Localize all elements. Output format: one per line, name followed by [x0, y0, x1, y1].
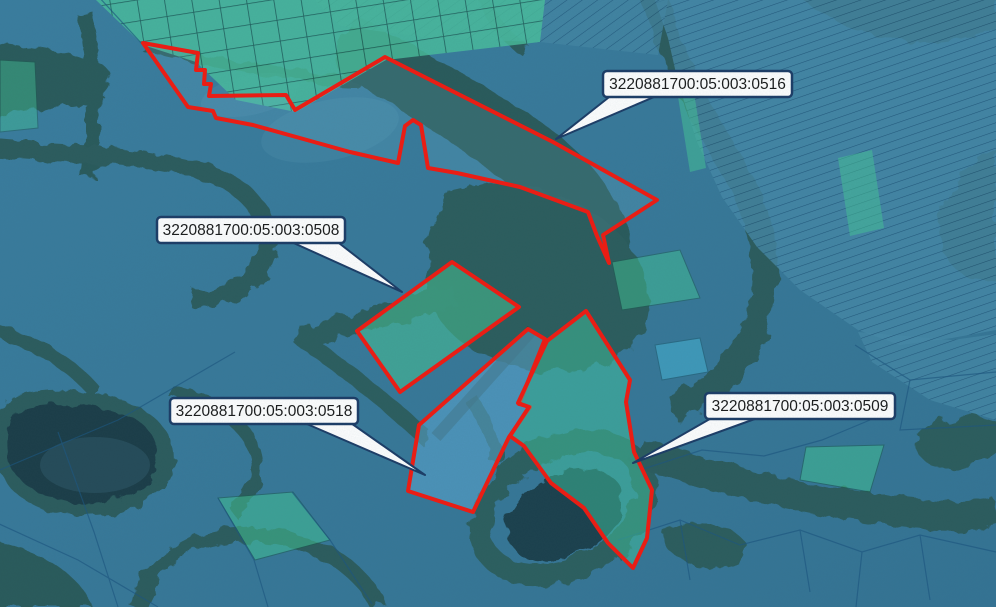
- image-grain: [0, 0, 996, 607]
- cadastral-map-viewport[interactable]: 3220881700:05:003:05163220881700:05:003:…: [0, 0, 996, 607]
- map-canvas[interactable]: 3220881700:05:003:05163220881700:05:003:…: [0, 0, 996, 607]
